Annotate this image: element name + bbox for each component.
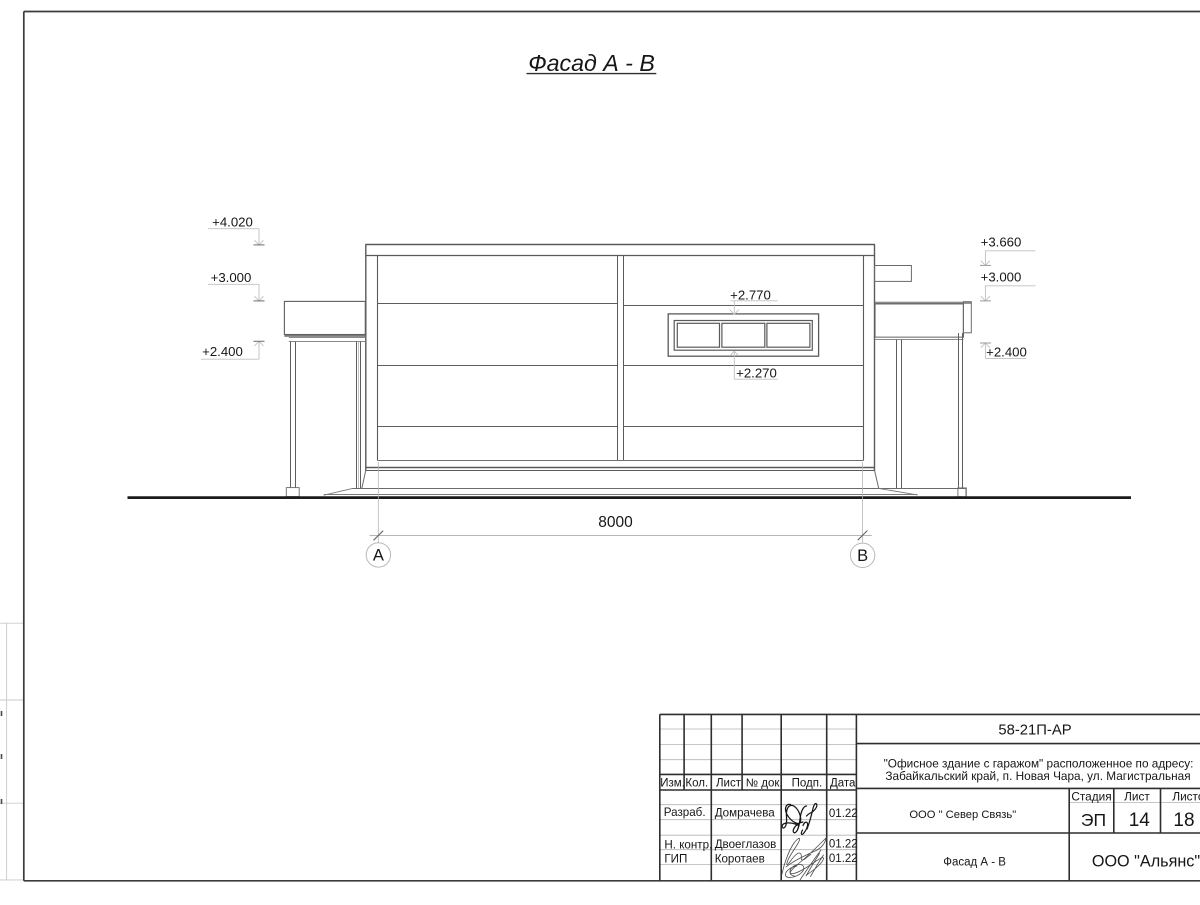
svg-text:ООО "Альянс": ООО "Альянс" bbox=[1092, 852, 1200, 870]
svg-text:Фасад А - В: Фасад А - В bbox=[943, 856, 1006, 868]
svg-text:Изм.: Изм. bbox=[660, 778, 685, 790]
svg-text:Кол.: Кол. bbox=[685, 778, 708, 790]
svg-text:Н. контр.: Н. контр. bbox=[664, 839, 712, 852]
svg-text:14: 14 bbox=[1129, 810, 1151, 831]
svg-text:Разраб.: Разраб. bbox=[664, 806, 706, 819]
svg-text:ООО " Север Связь": ООО " Север Связь" bbox=[909, 809, 1016, 821]
svg-text:8000: 8000 bbox=[598, 514, 633, 531]
svg-text:ЭП: ЭП bbox=[1081, 810, 1106, 830]
svg-text:+2.270: +2.270 bbox=[736, 366, 777, 381]
svg-text:Подп.: Подп. bbox=[792, 778, 823, 790]
svg-text:+2.770: +2.770 bbox=[730, 288, 771, 303]
svg-text:+3.660: +3.660 bbox=[981, 235, 1022, 250]
svg-text:+2.400: +2.400 bbox=[202, 344, 243, 359]
svg-text:+4.020: +4.020 bbox=[212, 215, 253, 230]
svg-text:Листов: Листов bbox=[1172, 790, 1200, 804]
svg-text:Двоеглазов: Двоеглазов bbox=[715, 838, 777, 851]
svg-text:+2.400: +2.400 bbox=[986, 345, 1027, 360]
svg-text:В: В bbox=[857, 547, 868, 565]
svg-text:01.22: 01.22 bbox=[829, 838, 858, 850]
svg-text:Лист: Лист bbox=[716, 778, 742, 790]
svg-text:А: А bbox=[373, 547, 384, 565]
svg-text:18: 18 bbox=[1173, 810, 1194, 831]
svg-text:Забайкальский край, п. Новая Ч: Забайкальский край, п. Новая Чара, ул. М… bbox=[885, 769, 1190, 783]
svg-text:Фасад А - В: Фасад А - В bbox=[528, 50, 655, 76]
svg-text:Коротаев: Коротаев bbox=[715, 852, 765, 865]
svg-text:Лист: Лист bbox=[1124, 790, 1150, 804]
svg-text:ГИП: ГИП bbox=[664, 853, 687, 866]
svg-text:+3.000: +3.000 bbox=[981, 270, 1022, 285]
svg-text:№ док.: № док. bbox=[746, 778, 783, 790]
svg-text:58-21П-АР: 58-21П-АР bbox=[998, 722, 1071, 738]
svg-text:01.22: 01.22 bbox=[829, 853, 858, 865]
svg-text:Дата: Дата bbox=[830, 778, 856, 790]
svg-text:Домрачева: Домрачева bbox=[715, 806, 776, 819]
svg-text:Стадия: Стадия bbox=[1071, 790, 1111, 804]
svg-text:01.22: 01.22 bbox=[829, 808, 858, 820]
svg-text:+3.000: +3.000 bbox=[211, 270, 252, 285]
